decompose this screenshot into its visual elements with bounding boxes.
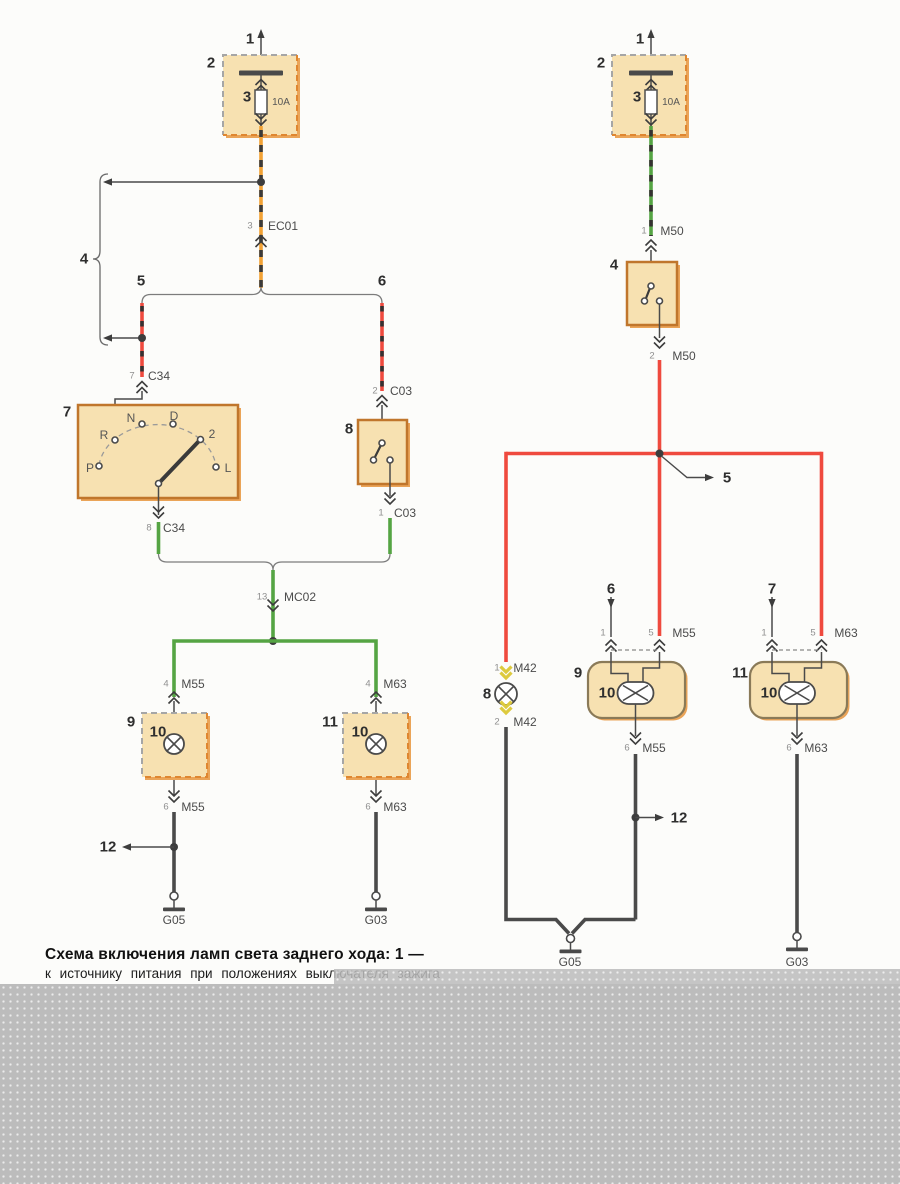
- redaction-block: [0, 984, 900, 1184]
- redaction-strip: [334, 969, 900, 985]
- ground-g05: [560, 935, 582, 954]
- label-left-lamp-11: 11: [322, 715, 338, 730]
- split-brace: [142, 287, 382, 303]
- label-left-ec01-pin3: 3: [247, 221, 252, 231]
- label-left-m63-pin6: 6: [365, 802, 370, 812]
- label-left-m55-top-name: M55: [181, 678, 204, 690]
- label-left-junction-12: 12: [100, 840, 117, 855]
- caption-title: Схема включения ламп света заднего хода:…: [45, 946, 424, 964]
- label-left-selector-7: 7: [63, 405, 71, 420]
- connector-m50-icon: [654, 337, 665, 349]
- label-right-m63-pin1: 1: [761, 628, 766, 638]
- label-left-fusebox-2: 2: [207, 56, 215, 71]
- left-arrow-icon: [103, 178, 112, 185]
- left-circuit: [78, 29, 411, 911]
- label-left-ground-g05: G05: [163, 914, 186, 926]
- label-left-fuse-rating: 10A: [272, 98, 290, 108]
- label-left-m55-pin4: 4: [163, 679, 168, 689]
- label-left-ec01-name: EC01: [268, 220, 298, 232]
- label-left-m63-top-name: M63: [383, 678, 406, 690]
- label-left-lamp-11-bulb-10: 10: [352, 725, 369, 740]
- label-right-lamp-11-bulb-10: 10: [761, 686, 778, 701]
- ground-icon: [163, 908, 185, 912]
- label-right-fusebox-2: 2: [597, 56, 605, 71]
- switch-box-4: [627, 262, 680, 328]
- label-selector-pos-r: R: [100, 429, 109, 441]
- left-arrow-icon: [122, 843, 131, 850]
- label-right-m63-pin5: 5: [810, 628, 815, 638]
- label-selector-pos-p: P: [86, 462, 94, 474]
- label-right-branch-7: 7: [768, 582, 776, 597]
- label-selector-pos-d: D: [170, 410, 179, 422]
- label-left-power-1: 1: [246, 32, 254, 47]
- ground-icon: [786, 948, 808, 952]
- label-left-mc02-name: MC02: [284, 591, 316, 603]
- label-right-m63-bottom-name: M63: [804, 742, 827, 754]
- label-selector-pos-l: L: [225, 462, 232, 474]
- label-left-fuse-3: 3: [243, 90, 251, 105]
- label-right-power-1: 1: [636, 32, 644, 47]
- label-left-c34-pin7: 7: [129, 371, 134, 381]
- label-selector-pos-n: N: [127, 412, 136, 424]
- label-left-ground-g03: G03: [365, 914, 388, 926]
- label-left-c34-top-name: C34: [148, 370, 170, 382]
- up-arrow-icon: [647, 29, 654, 38]
- label-left-c03-top-name: C03: [390, 385, 412, 397]
- label-right-m50-pin1: 1: [641, 226, 646, 236]
- label-left-c34-bottom-name: C34: [163, 522, 185, 534]
- label-right-m42-pin1: 1: [494, 663, 499, 673]
- label-right-m63-name: M63: [834, 627, 857, 639]
- scanned-wiring-diagram-page: 12310A3EC014567C347PRND2L8C342C0381C0313…: [0, 0, 900, 1184]
- label-right-m50-bottom-name: M50: [672, 350, 695, 362]
- busbar: [629, 71, 673, 76]
- label-right-m55-bottom-name: M55: [642, 742, 665, 754]
- merge-brace: [159, 554, 391, 570]
- label-right-m55-pin6: 6: [624, 743, 629, 753]
- label-left-mc02-pin13: 13: [257, 592, 268, 602]
- label-right-m42-pin2: 2: [494, 717, 499, 727]
- label-left-m63-bottom-name: M63: [383, 801, 406, 813]
- left-arrow-icon: [103, 334, 112, 341]
- label-right-ground-g03: G03: [786, 956, 809, 968]
- label-right-m55-pin1: 1: [600, 628, 605, 638]
- brace-4: [93, 174, 108, 345]
- ground-icon: [365, 908, 387, 912]
- label-right-m50-pin2: 2: [649, 351, 654, 361]
- label-left-branch-6: 6: [378, 274, 386, 289]
- label-right-lamp-11: 11: [732, 666, 748, 681]
- label-left-branch-5: 5: [137, 274, 145, 289]
- label-selector-pos-2: 2: [209, 428, 216, 440]
- label-left-c03-pin2: 2: [372, 386, 377, 396]
- label-right-ground-g05: G05: [559, 956, 582, 968]
- down-arrow-icon: [768, 599, 775, 608]
- ground-g03: [365, 892, 387, 911]
- right-arrow-icon: [705, 474, 714, 481]
- fuse-10a: [645, 90, 657, 114]
- junction-dot: [138, 334, 146, 342]
- label-right-fuse-3: 3: [633, 90, 641, 105]
- right-arrow-icon: [655, 814, 664, 821]
- label-right-m55-name: M55: [672, 627, 695, 639]
- ground-g05: [163, 892, 185, 911]
- label-left-c03-bottom-name: C03: [394, 507, 416, 519]
- label-left-brace-4: 4: [80, 252, 88, 267]
- label-left-c34-pin8: 8: [146, 523, 151, 533]
- ground-icon: [560, 950, 582, 954]
- label-right-switch-4: 4: [610, 258, 618, 273]
- label-left-m63-pin4: 4: [365, 679, 370, 689]
- label-right-lamp-9-bulb-10: 10: [599, 686, 616, 701]
- label-right-fuse-rating: 10A: [662, 98, 680, 108]
- label-right-junction-5: 5: [723, 471, 731, 486]
- fuse-10a: [255, 90, 267, 114]
- label-left-switch-8: 8: [345, 422, 353, 437]
- label-left-m55-bottom-name: M55: [181, 801, 204, 813]
- label-left-c03-pin1: 1: [378, 508, 383, 518]
- label-left-lamp-9: 9: [127, 715, 135, 730]
- label-right-branch-6: 6: [607, 582, 615, 597]
- label-right-lamp-9: 9: [574, 666, 582, 681]
- down-arrow-icon: [607, 599, 614, 608]
- yellow-connector-icon: [501, 667, 512, 679]
- connector-m50-icon: [646, 240, 657, 252]
- switch-box-8: [358, 420, 410, 487]
- label-right-lamp-8: 8: [483, 687, 491, 702]
- label-right-m42-bottom-name: M42: [513, 716, 536, 728]
- label-left-lamp-9-bulb-10: 10: [150, 725, 167, 740]
- label-left-m55-pin6: 6: [163, 802, 168, 812]
- label-right-m50-top-name: M50: [660, 225, 683, 237]
- junction-dot: [257, 178, 265, 186]
- up-arrow-icon: [257, 29, 264, 38]
- label-right-m55-pin5: 5: [648, 628, 653, 638]
- gear-selector-switch-box: [78, 405, 241, 501]
- busbar: [239, 71, 283, 76]
- label-right-m63-pin6: 6: [786, 743, 791, 753]
- label-right-junction-12: 12: [671, 811, 688, 826]
- ground-g03: [786, 933, 808, 952]
- label-right-m42-top-name: M42: [513, 662, 536, 674]
